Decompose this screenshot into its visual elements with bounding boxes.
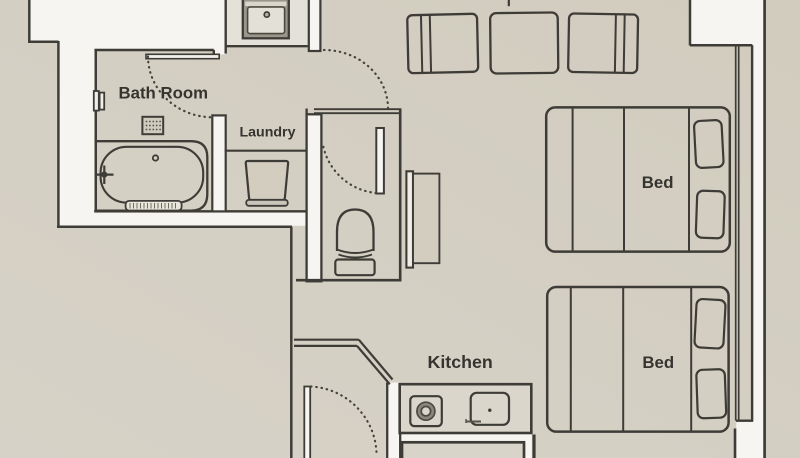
svg-text:Bed: Bed: [642, 173, 674, 192]
svg-text:Laundry: Laundry: [240, 125, 296, 141]
svg-text:Kitchen: Kitchen: [428, 352, 493, 372]
svg-text:Bath Room: Bath Room: [119, 83, 209, 102]
svg-text:Bed: Bed: [642, 353, 674, 372]
